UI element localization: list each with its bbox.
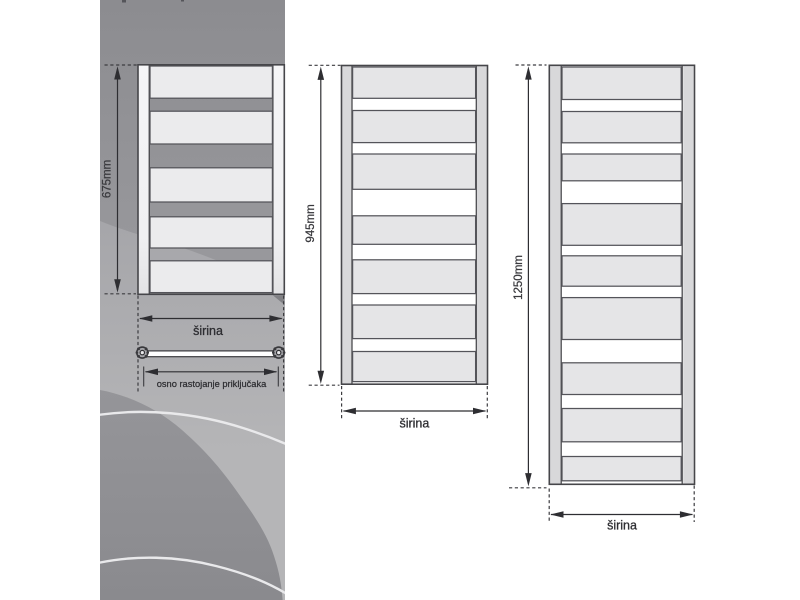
svg-text:1250mm: 1250mm	[513, 255, 525, 300]
svg-text:širina: širina	[193, 324, 223, 338]
svg-text:945mm: 945mm	[305, 204, 317, 242]
svg-text:675mm: 675mm	[102, 160, 114, 198]
svg-text:širina: širina	[607, 519, 637, 533]
svg-text:osno rastojanje priključaka: osno rastojanje priključaka	[157, 379, 267, 389]
svg-text:širina: širina	[399, 417, 429, 431]
